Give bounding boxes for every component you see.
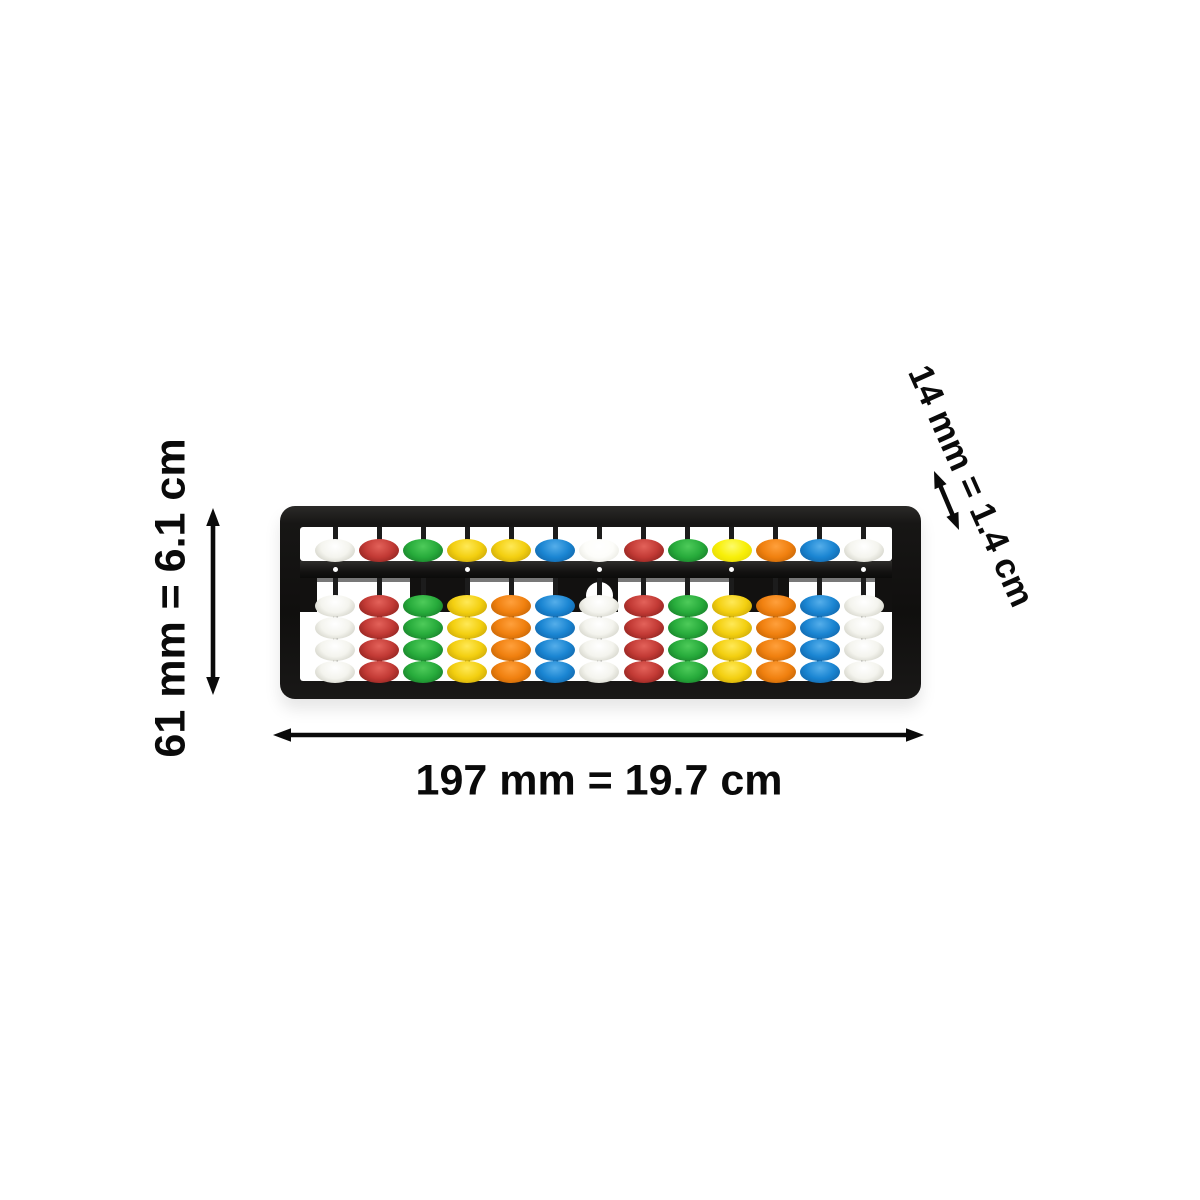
earth-bead [756,595,796,617]
heaven-bead [403,539,443,562]
earth-bead [403,595,443,617]
earth-bead [756,661,796,683]
heaven-bead [668,539,708,562]
heaven-bead [844,539,884,562]
width-arrow-head-left [273,728,291,742]
earth-bead [844,595,884,617]
earth-bead [447,595,487,617]
beam-dot [333,567,338,572]
heaven-bead [712,539,752,562]
abacus-top-frame [280,506,921,527]
heaven-bead [756,539,796,562]
earth-bead [800,595,840,617]
earth-bead [844,661,884,683]
height-arrow-head-bottom [206,677,220,695]
earth-bead [403,661,443,683]
earth-bead [359,639,399,661]
earth-bead [756,639,796,661]
earth-bead [624,617,664,639]
heaven-bead [447,539,487,562]
earth-bead [844,617,884,639]
heaven-bead [624,539,664,562]
heaven-bead [800,539,840,562]
earth-bead [668,617,708,639]
earth-bead [668,661,708,683]
earth-bead [315,661,355,683]
dimension-label-depth: 14 mm = 1.4 cm [902,360,1040,612]
dimension-label-width: 197 mm = 19.7 cm [416,760,783,803]
earth-bead [359,617,399,639]
beam-dot [597,567,602,572]
heaven-bead [315,539,355,562]
earth-bead [624,595,664,617]
width-arrow [273,728,924,742]
earth-bead [712,639,752,661]
width-arrow-head-right [906,728,924,742]
earth-bead [403,639,443,661]
earth-bead [800,639,840,661]
earth-bead [359,595,399,617]
height-arrow-head-top [206,508,220,526]
heaven-bead [359,539,399,562]
earth-bead [447,617,487,639]
abacus-bottom-frame [280,681,921,699]
dimension-label-height: 61 mm = 6.1 cm [150,438,193,757]
earth-bead [800,617,840,639]
product-dimension-diagram: 61 mm = 6.1 cm 197 mm = 19.7 cm 14 mm = … [0,0,1200,1200]
abacus [280,506,921,699]
earth-bead [800,661,840,683]
earth-bead [624,661,664,683]
earth-bead [668,595,708,617]
earth-bead [315,617,355,639]
beam-dot [465,567,470,572]
earth-bead [359,661,399,683]
earth-bead [403,617,443,639]
earth-bead [712,661,752,683]
earth-bead [712,595,752,617]
height-arrow [206,508,220,695]
earth-bead [844,639,884,661]
earth-bead [447,661,487,683]
earth-bead [315,595,355,617]
earth-bead [624,639,664,661]
beam-dot [729,567,734,572]
earth-bead [315,639,355,661]
earth-bead [756,617,796,639]
depth-arrow-head-bottom [946,512,959,530]
earth-bead [447,639,487,661]
earth-bead [668,639,708,661]
earth-bead [712,617,752,639]
